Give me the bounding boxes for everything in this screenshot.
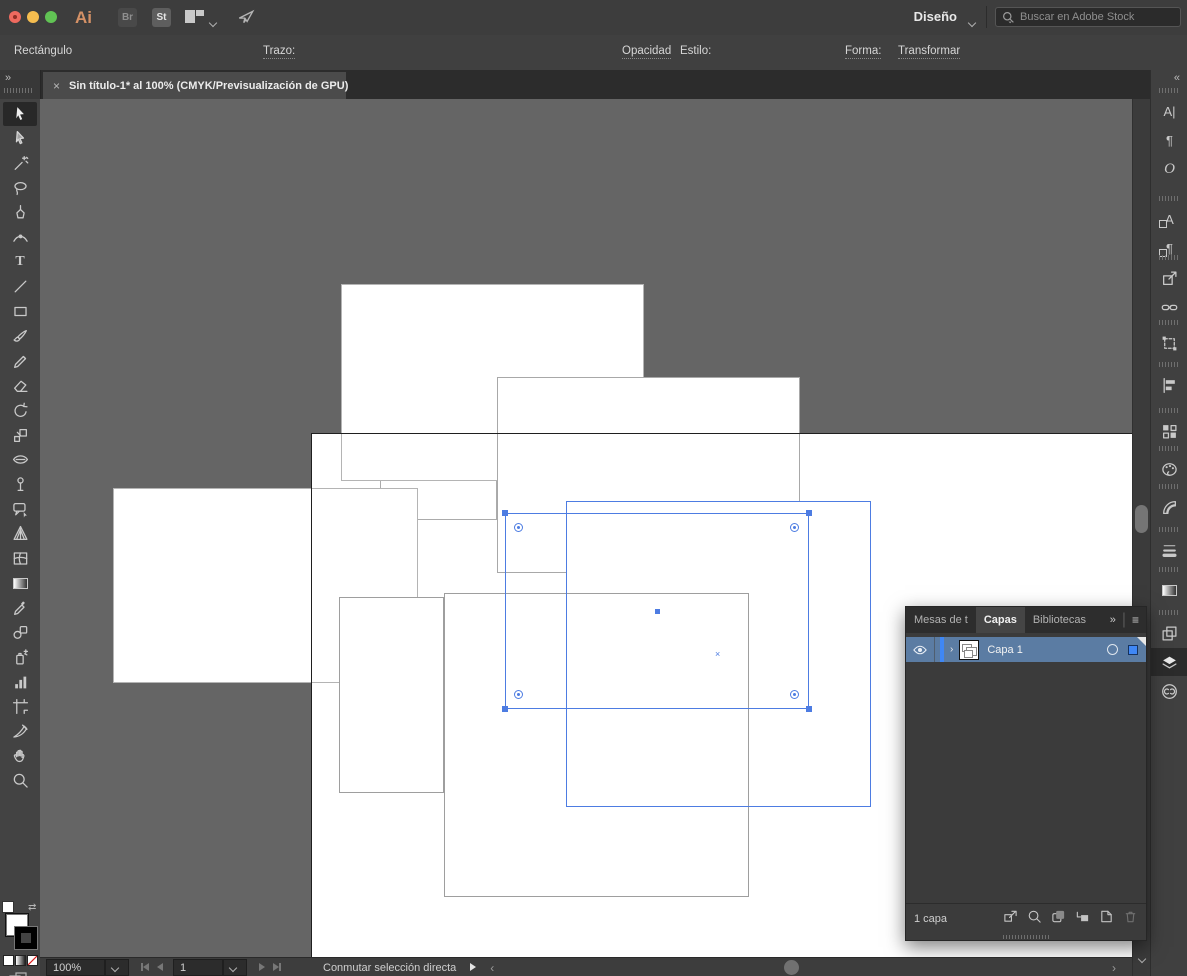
eyedropper-tool[interactable] [3, 596, 37, 620]
rect-6[interactable] [339, 597, 444, 793]
eraser-tool[interactable] [3, 374, 37, 398]
tab-layers[interactable]: Capas [976, 607, 1025, 633]
magic-wand-tool[interactable] [3, 151, 37, 175]
layer-selected-accent [940, 637, 944, 662]
minimize-window-button[interactable] [27, 11, 39, 23]
unsaved-dot-icon [13, 15, 17, 19]
artboard-number-value[interactable]: 1 [173, 959, 223, 976]
layers-panel: Mesas de t Capas Bibliotecas » | ≡ › Cap… [905, 606, 1147, 941]
direct-selection-tool[interactable] [3, 127, 37, 151]
context-label: Rectángulo [14, 45, 72, 57]
color-panel-icon[interactable] [1151, 455, 1187, 483]
layer-count-label: 1 capa [914, 913, 947, 925]
cc-libraries-panel-icon[interactable] [1151, 677, 1187, 705]
pathfinder-panel-icon[interactable] [1151, 619, 1187, 647]
share-document-icon[interactable] [237, 8, 255, 31]
make-clipping-mask-icon[interactable] [1051, 909, 1066, 929]
layers-footer-icons [1003, 909, 1146, 929]
status-bar: 100% 1 Conmutar selección directa ‹ › [40, 957, 1132, 976]
panel-group-grip-icon[interactable] [1159, 196, 1180, 201]
column-graph-tool[interactable] [3, 670, 37, 694]
status-mode-label: Conmutar selección directa [323, 962, 456, 974]
layer-disclosure-icon[interactable]: › [950, 644, 953, 655]
gradient-button[interactable] [15, 955, 26, 966]
zoom-window-button[interactable] [45, 11, 57, 23]
panel-more-icon[interactable]: » [1110, 614, 1116, 626]
adobe-stock-search-input[interactable]: Buscar en Adobe Stock [995, 7, 1181, 27]
selection-x-marker: × [715, 650, 720, 659]
search-icon [1002, 11, 1015, 24]
zoom-tool[interactable] [3, 769, 37, 793]
stroke-panel-icon[interactable] [1151, 536, 1187, 564]
first-artboard-icon[interactable] [141, 962, 149, 974]
layer-selection-chip[interactable] [1128, 645, 1138, 655]
scale-tool[interactable] [3, 423, 37, 447]
selection-anchor-handle[interactable] [806, 706, 812, 712]
panel-group-grip-icon[interactable] [1159, 567, 1180, 572]
panel-group-grip-icon[interactable] [1159, 408, 1180, 413]
illustrator-logo: Ai [75, 8, 92, 28]
symbol-sprayer-tool[interactable] [3, 645, 37, 669]
drawing-modes-icon[interactable] [8, 971, 30, 976]
document-tab[interactable]: × Sin título-1* al 100% (CMYK/Previsuali… [43, 72, 346, 99]
links-panel-icon[interactable] [1151, 293, 1187, 321]
selection-anchor-handle[interactable] [502, 706, 508, 712]
artboard-left-edge [311, 433, 312, 957]
delete-layer-icon[interactable] [1123, 909, 1138, 929]
swap-colors-icon[interactable]: ⇄ [28, 902, 36, 913]
menubar-divider [986, 6, 987, 28]
panel-group-grip-icon[interactable] [1159, 446, 1180, 451]
perspective-grid-tool[interactable] [3, 522, 37, 546]
document-title: Sin título-1* al 100% (CMYK/Previsualiza… [69, 80, 348, 92]
curvature-tool[interactable] [3, 226, 37, 250]
layer-visibility-eye-icon[interactable] [913, 645, 927, 655]
gradient-panel-icon[interactable] [1151, 576, 1187, 604]
artboard-top-edge [311, 433, 1132, 434]
type-tool[interactable]: T [3, 250, 37, 274]
selection-anchor-handle[interactable] [806, 510, 812, 516]
live-corner-widget[interactable] [514, 523, 523, 532]
artboards-panel-icon[interactable] [1151, 417, 1187, 445]
document-tab-bar: » × Sin título-1* al 100% (CMYK/Previsua… [0, 70, 1150, 100]
scroll-down-icon[interactable] [1138, 955, 1146, 963]
live-corner-widget[interactable] [514, 690, 523, 699]
live-corner-widget[interactable] [790, 523, 799, 532]
width-tool[interactable] [3, 448, 37, 472]
status-popup-icon[interactable] [470, 962, 476, 974]
panel-group-grip-icon[interactable] [1159, 527, 1180, 532]
panel-group-grip-icon[interactable] [1159, 255, 1180, 260]
scroll-right-icon[interactable]: › [1112, 961, 1116, 975]
bridge-button[interactable]: Br [118, 8, 137, 27]
artboard-number-chevron-icon[interactable] [223, 959, 247, 976]
puppet-warp-tool[interactable] [3, 473, 37, 497]
stroke-weight-label[interactable]: Trazo: [263, 45, 295, 59]
panel-resize-grip[interactable] [1003, 935, 1049, 939]
new-layer-icon[interactable] [1099, 909, 1114, 929]
panel-group-grip-icon[interactable] [1159, 320, 1180, 325]
next-artboard-icon[interactable] [259, 962, 265, 974]
layers-panel-icon[interactable] [1151, 648, 1187, 676]
stroke-color-indicator[interactable] [15, 927, 37, 949]
panel-group-grip-icon[interactable] [1159, 484, 1180, 489]
color-button[interactable] [3, 955, 14, 966]
tools-panel-header: » [0, 70, 41, 99]
lasso-tool[interactable] [3, 176, 37, 200]
collapse-panels-icon[interactable]: « [1174, 72, 1180, 84]
selection-center-point[interactable] [655, 609, 660, 614]
selection-tool[interactable] [3, 102, 37, 126]
free-transform-tool[interactable] [3, 497, 37, 521]
stock-button[interactable]: St [152, 8, 171, 27]
layer-name[interactable]: Capa 1 [987, 644, 1022, 656]
horizontal-scrollbar-thumb[interactable] [784, 960, 799, 975]
toolbar: ⇄ T [0, 99, 41, 976]
close-window-button[interactable] [9, 11, 21, 23]
last-artboard-icon[interactable] [273, 962, 281, 974]
style-label: Estilo: [680, 45, 711, 57]
export-panel-icon[interactable] [1151, 264, 1187, 292]
transform-panel-icon[interactable] [1151, 329, 1187, 357]
transform-options-label[interactable]: Transformar [898, 45, 960, 59]
panel-fold-corner [1137, 637, 1146, 646]
default-colors-icon[interactable] [2, 901, 14, 913]
line-segment-tool[interactable] [3, 275, 37, 299]
expand-panel-icon[interactable]: » [5, 72, 11, 84]
shape-options-label[interactable]: Forma: [845, 45, 881, 59]
zoom-level-chevron-icon[interactable] [105, 959, 129, 976]
paintbrush-tool[interactable] [3, 324, 37, 348]
tab-artboards[interactable]: Mesas de t [906, 607, 976, 633]
color-guide-panel-icon[interactable] [1151, 493, 1187, 521]
illustrator-window: Ai Br St Diseño Buscar en Adobe Stock Re… [0, 0, 1187, 976]
layer-row[interactable]: › Capa 1 [906, 637, 1146, 662]
zoom-level-value[interactable]: 100% [46, 959, 105, 976]
character-panel-icon[interactable]: A| [1151, 97, 1187, 125]
layers-panel-tabs: Mesas de t Capas Bibliotecas » | ≡ [906, 607, 1146, 633]
hand-tool[interactable] [3, 744, 37, 768]
paragraph-panel-icon[interactable]: ¶ [1151, 126, 1187, 154]
opentype-panel-icon[interactable]: O [1151, 155, 1187, 183]
collect-for-export-icon[interactable] [1003, 909, 1018, 929]
layer-thumbnail[interactable] [959, 640, 979, 660]
blend-tool[interactable] [3, 621, 37, 645]
opacity-label[interactable]: Opacidad [622, 45, 671, 59]
align-panel-icon[interactable] [1151, 371, 1187, 399]
locate-object-icon[interactable] [1027, 909, 1042, 929]
arrange-documents-icon[interactable] [185, 10, 204, 28]
none-button[interactable] [27, 955, 38, 966]
layers-panel-footer: 1 capa [906, 903, 1146, 934]
rotate-tool[interactable] [3, 398, 37, 422]
row-divider [934, 637, 935, 662]
layer-target-icon[interactable] [1107, 644, 1118, 655]
panel-icon-strip: « A|¶OA¶ [1150, 70, 1187, 976]
tab-libraries[interactable]: Bibliotecas [1025, 607, 1094, 633]
search-placeholder: Buscar en Adobe Stock [1020, 11, 1134, 23]
panel-grip-icon[interactable] [4, 88, 34, 93]
artboard-tool[interactable] [3, 695, 37, 719]
slice-tool[interactable] [3, 720, 37, 744]
arrange-documents-chevron-icon[interactable] [210, 14, 216, 32]
panel-menu-icon[interactable]: ≡ [1132, 613, 1139, 627]
panel-group-grip-icon[interactable] [1159, 88, 1180, 93]
workspace-chevron-icon[interactable] [969, 14, 975, 32]
gradient-tool[interactable] [3, 571, 37, 595]
character-styles-icon[interactable]: A [1151, 205, 1187, 233]
selection-anchor-handle[interactable] [502, 510, 508, 516]
previous-artboard-icon[interactable] [157, 962, 163, 974]
mesh-tool[interactable] [3, 547, 37, 571]
pen-tool[interactable] [3, 201, 37, 225]
panel-group-grip-icon[interactable] [1159, 610, 1180, 615]
live-corner-widget[interactable] [790, 690, 799, 699]
rectangle-tool[interactable] [3, 300, 37, 324]
close-tab-icon[interactable]: × [53, 79, 60, 93]
menu-bar: Ai Br St Diseño Buscar en Adobe Stock [0, 0, 1187, 36]
control-bar: Rectángulo Trazo: 0,5 pt Uniforme Básico… [0, 35, 1187, 71]
new-sublayer-icon[interactable] [1075, 909, 1090, 929]
vertical-scrollbar-thumb[interactable] [1135, 505, 1148, 533]
scroll-left-icon[interactable]: ‹ [490, 961, 494, 975]
pencil-tool[interactable] [3, 349, 37, 373]
panel-group-grip-icon[interactable] [1159, 362, 1180, 367]
workspace-switcher[interactable]: Diseño [914, 9, 957, 24]
